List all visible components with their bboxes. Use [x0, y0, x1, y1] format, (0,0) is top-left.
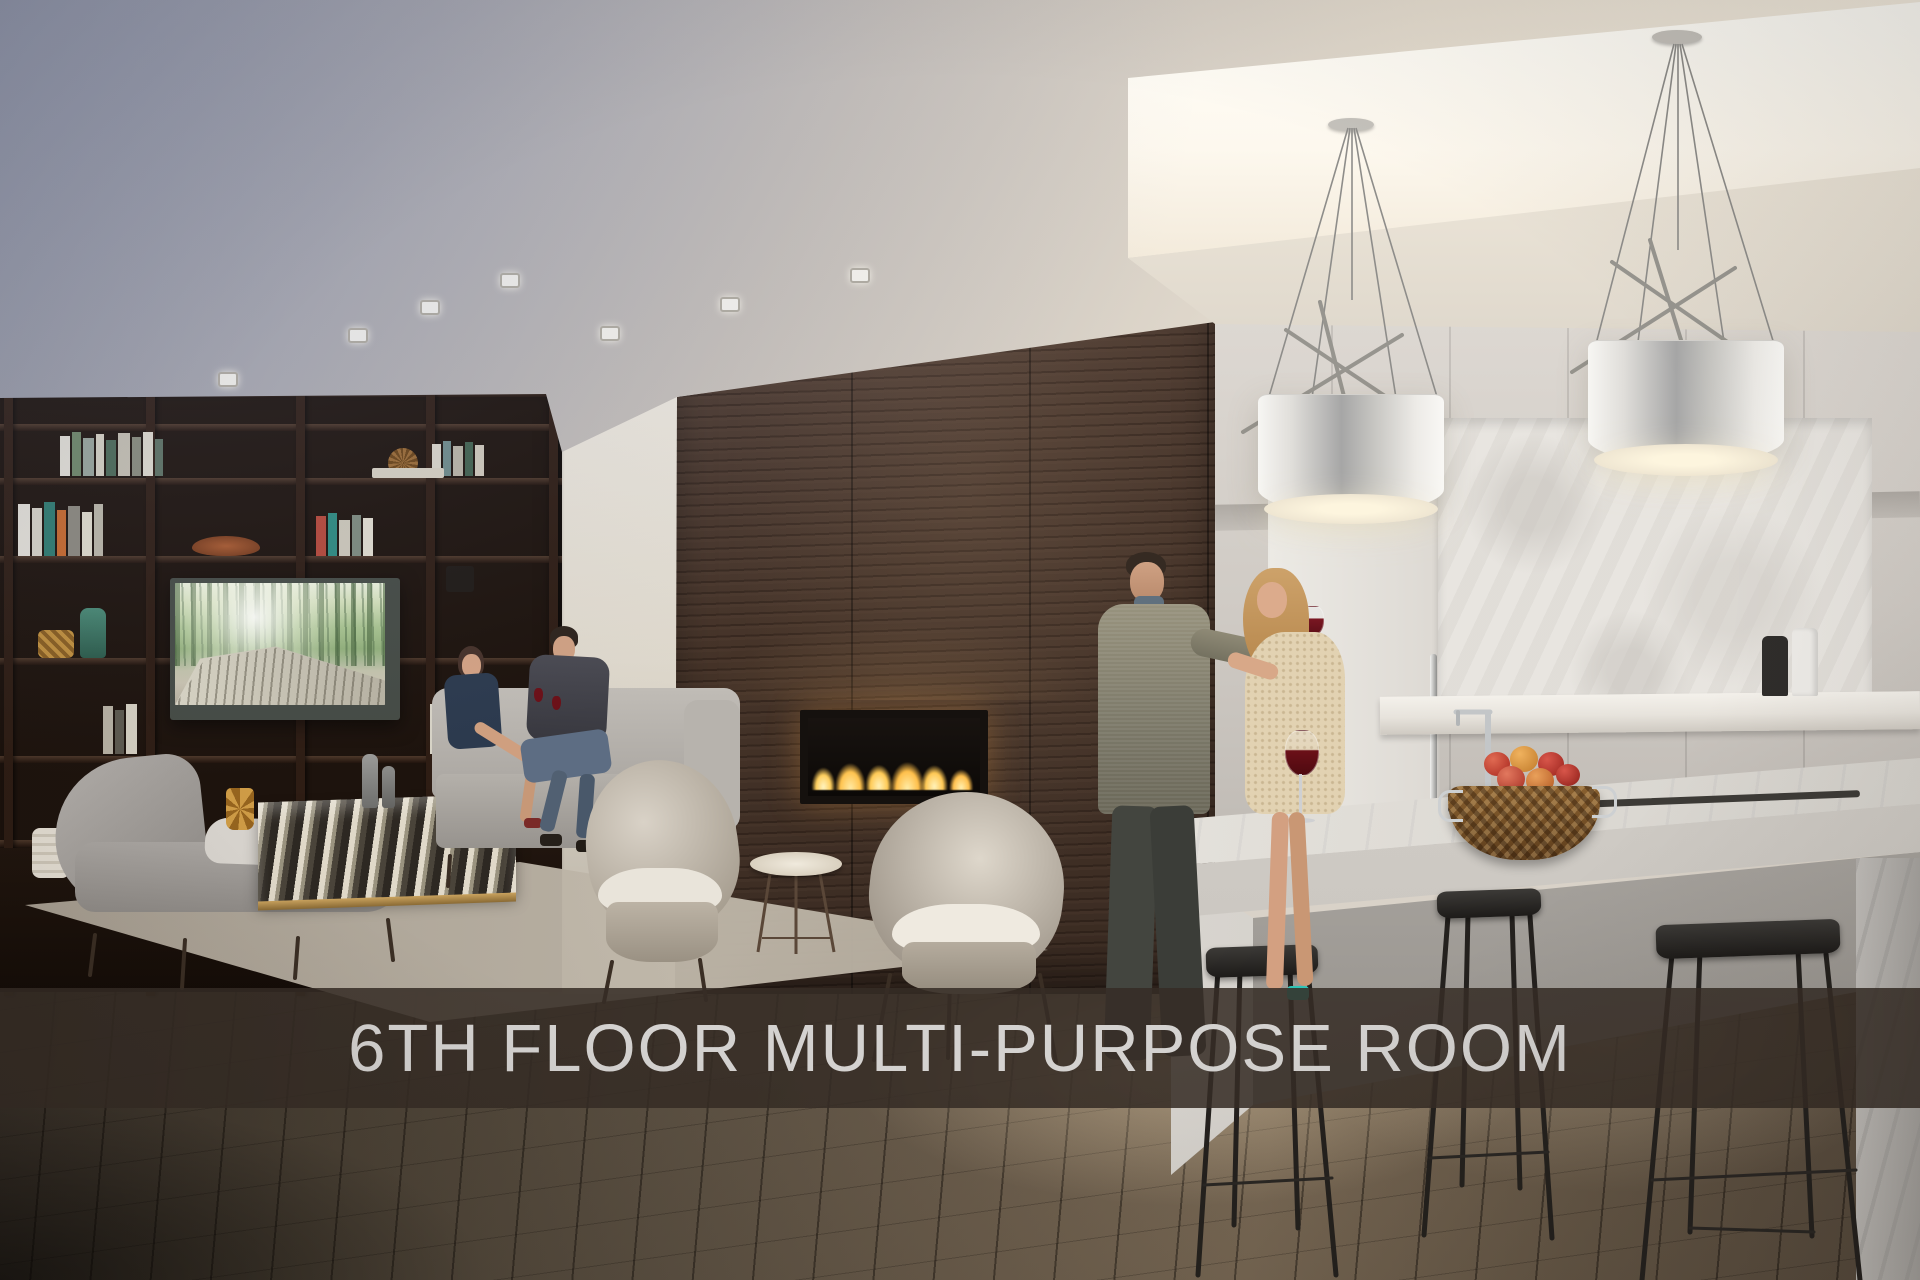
caption-banner: 6TH FLOOR MULTI-PURPOSE ROOM: [0, 988, 1920, 1108]
bar-stool-seat: [1655, 919, 1840, 959]
armchair-base: [902, 942, 1036, 994]
armchair-left: [572, 760, 748, 985]
room-rendering: 6TH FLOOR MULTI-PURPOSE ROOM: [0, 0, 1920, 1280]
standing-woman: [1235, 562, 1405, 1032]
armchair-base: [606, 902, 718, 962]
pendant-glow: [1594, 444, 1778, 476]
basket-handle: [1438, 790, 1463, 822]
side-table-top: [750, 852, 842, 876]
woman-leg: [1266, 812, 1289, 990]
pendant-glow: [1264, 494, 1438, 524]
wine-glass: [552, 696, 561, 710]
basket-handle: [1592, 786, 1617, 818]
bar-stool-seat: [1437, 888, 1542, 919]
apple: [1556, 764, 1580, 786]
woman-face: [1257, 582, 1287, 618]
seated-man-shoe: [540, 834, 562, 846]
armchair-right: [862, 792, 1072, 992]
caption-text: 6TH FLOOR MULTI-PURPOSE ROOM: [348, 1010, 1572, 1087]
wine-glass: [534, 688, 543, 702]
woman-leg: [1288, 812, 1313, 987]
woman-wine-glass: [1285, 730, 1319, 776]
